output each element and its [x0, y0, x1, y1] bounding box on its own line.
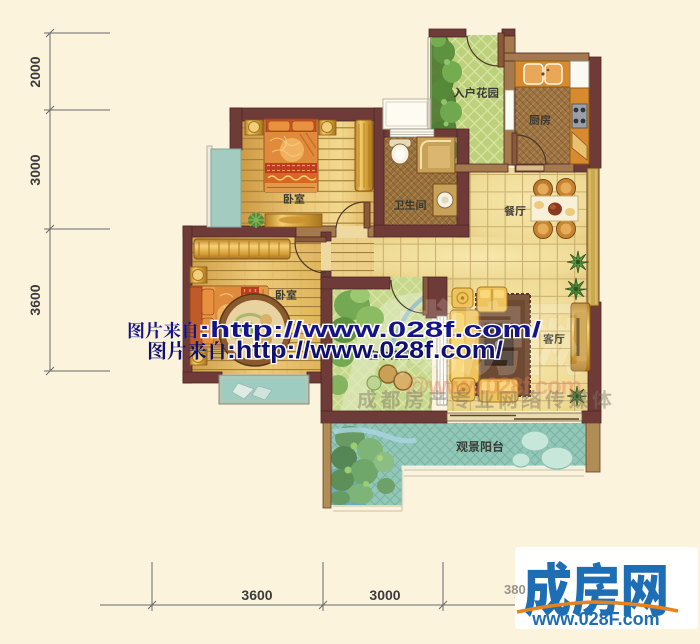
svg-text:3000: 3000 [27, 154, 43, 185]
svg-text:380: 380 [504, 582, 526, 597]
svg-text:3600: 3600 [27, 284, 43, 315]
svg-text:3600: 3600 [241, 587, 272, 603]
svg-text:www.028F.com: www.028F.com [531, 609, 659, 629]
svg-text:2000: 2000 [27, 56, 43, 87]
svg-text::http://www.028f.com/: :http://www.028f.com/ [227, 337, 503, 364]
svg-text:3000: 3000 [369, 587, 400, 603]
